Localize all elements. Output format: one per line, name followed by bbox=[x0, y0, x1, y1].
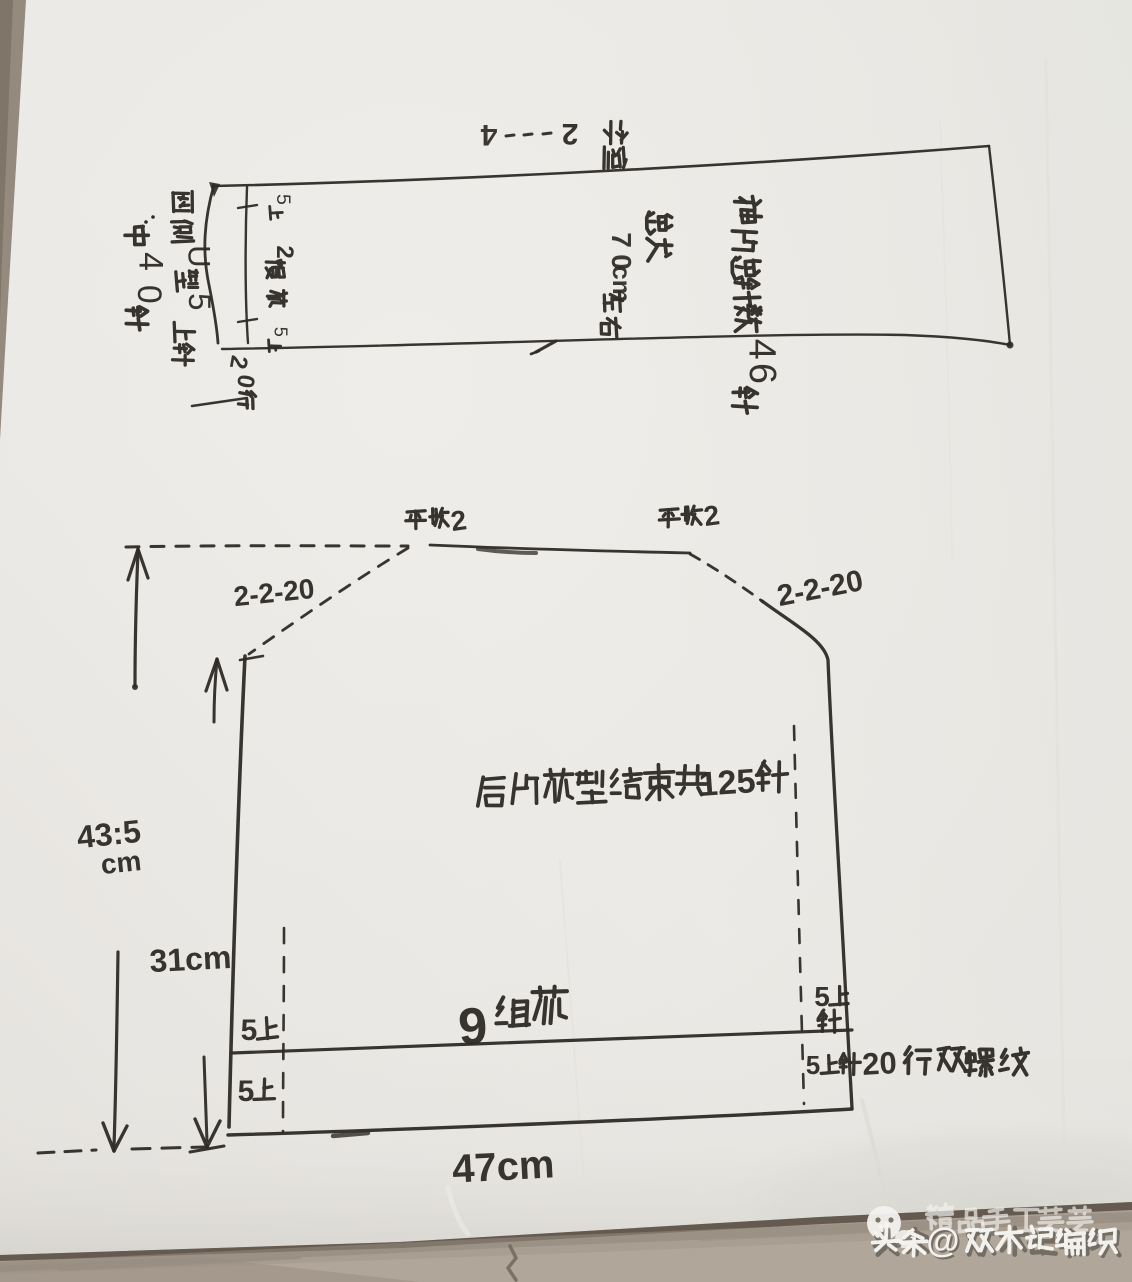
svg-text:U: U bbox=[182, 245, 217, 268]
svg-text:5: 5 bbox=[182, 293, 217, 310]
svg-text:7: 7 bbox=[606, 232, 637, 248]
svg-text:5: 5 bbox=[814, 981, 830, 1012]
svg-text:5: 5 bbox=[270, 327, 290, 337]
svg-text:20: 20 bbox=[861, 1045, 897, 1082]
svg-text:4: 4 bbox=[131, 252, 169, 271]
svg-text:cm: cm bbox=[99, 845, 142, 880]
svg-text:125: 125 bbox=[698, 762, 757, 804]
svg-text:5: 5 bbox=[806, 1050, 820, 1080]
svg-text:9: 9 bbox=[456, 997, 489, 1057]
svg-text:4: 4 bbox=[742, 339, 784, 360]
svg-text:2: 2 bbox=[562, 117, 579, 150]
svg-text:5: 5 bbox=[241, 1014, 258, 1047]
svg-text:5: 5 bbox=[238, 1075, 255, 1108]
svg-text:5: 5 bbox=[272, 194, 294, 205]
svg-text:0: 0 bbox=[130, 285, 168, 304]
svg-text:4: 4 bbox=[480, 118, 497, 151]
svg-text:6: 6 bbox=[742, 363, 784, 384]
svg-text:31cm: 31cm bbox=[149, 939, 233, 979]
svg-text:@: @ bbox=[926, 1222, 959, 1260]
svg-text:47cm: 47cm bbox=[451, 1142, 555, 1191]
svg-text:2: 2 bbox=[271, 245, 298, 258]
